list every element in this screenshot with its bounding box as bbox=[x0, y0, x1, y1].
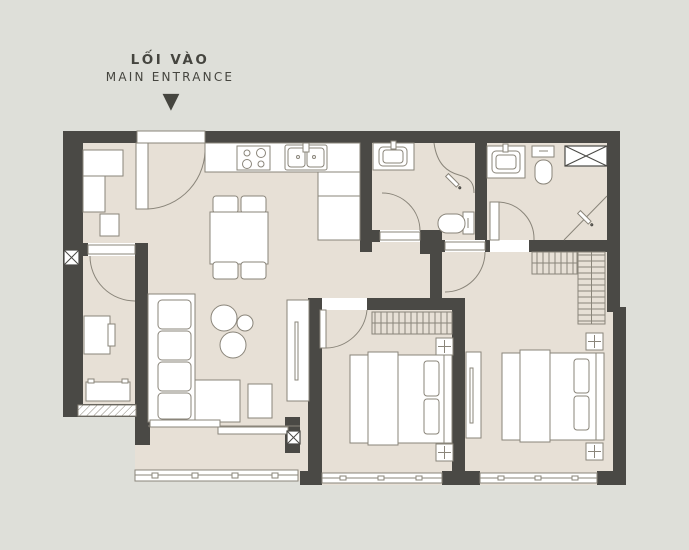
tv-cabinet bbox=[466, 352, 481, 438]
kitchen-tall-cabinet bbox=[318, 172, 360, 240]
dining-table bbox=[210, 212, 268, 264]
kitchen-sink bbox=[285, 143, 327, 170]
pillow bbox=[574, 359, 589, 393]
entrance-label-vi: LỐI VÀO bbox=[131, 48, 210, 68]
nightstand-lamp bbox=[586, 333, 603, 350]
faucet-icon bbox=[503, 144, 508, 152]
faucet-icon bbox=[391, 141, 396, 149]
balcony-railing bbox=[135, 470, 298, 481]
blanket bbox=[368, 352, 398, 445]
shoe-cabinet bbox=[83, 150, 123, 176]
entrance-label-en: MAIN ENTRANCE bbox=[106, 70, 234, 84]
tv-icon bbox=[295, 322, 298, 380]
desk bbox=[84, 316, 110, 354]
dining-chair bbox=[241, 262, 266, 279]
nightstand-lamp bbox=[586, 443, 603, 460]
hall-side-table bbox=[100, 214, 119, 236]
kitchen-counter bbox=[205, 143, 360, 172]
study-window bbox=[78, 405, 136, 416]
pillow bbox=[574, 396, 589, 430]
nightstand-lamp bbox=[436, 444, 453, 461]
toilet bbox=[438, 212, 474, 234]
bathroom-1-sink bbox=[373, 141, 414, 170]
pillow bbox=[424, 399, 439, 434]
headboard bbox=[596, 353, 604, 440]
nightstand-lamp bbox=[436, 338, 453, 355]
tv-icon bbox=[470, 368, 473, 423]
bathroom-2-sink bbox=[487, 144, 525, 178]
wardrobe bbox=[372, 312, 452, 334]
dining-chair bbox=[213, 196, 238, 213]
dining-chair bbox=[213, 262, 238, 279]
stove bbox=[237, 146, 270, 170]
entrance-label: LỐI VÀO MAIN ENTRANCE ▼ bbox=[106, 48, 234, 114]
faucet-icon bbox=[303, 143, 309, 152]
bed bbox=[350, 352, 452, 445]
sofa-chaise bbox=[195, 380, 240, 422]
bedroom-1-window bbox=[322, 473, 442, 483]
master-bedroom-window bbox=[480, 473, 597, 483]
wall-shaft-box bbox=[64, 250, 79, 265]
hall-cabinet bbox=[83, 176, 105, 212]
entrance-arrow-icon: ▼ bbox=[163, 89, 180, 114]
tv-cabinet bbox=[287, 300, 309, 401]
pillow bbox=[424, 361, 439, 396]
dining-chair bbox=[241, 196, 266, 213]
blanket bbox=[520, 350, 550, 442]
headboard bbox=[444, 355, 452, 443]
toilet bbox=[532, 146, 554, 184]
desk-chair bbox=[108, 324, 115, 346]
bed bbox=[502, 350, 604, 442]
floor-plan-canvas: LỐI VÀO MAIN ENTRANCE ▼ bbox=[0, 0, 689, 550]
bench bbox=[86, 379, 130, 401]
ottoman bbox=[248, 384, 272, 418]
